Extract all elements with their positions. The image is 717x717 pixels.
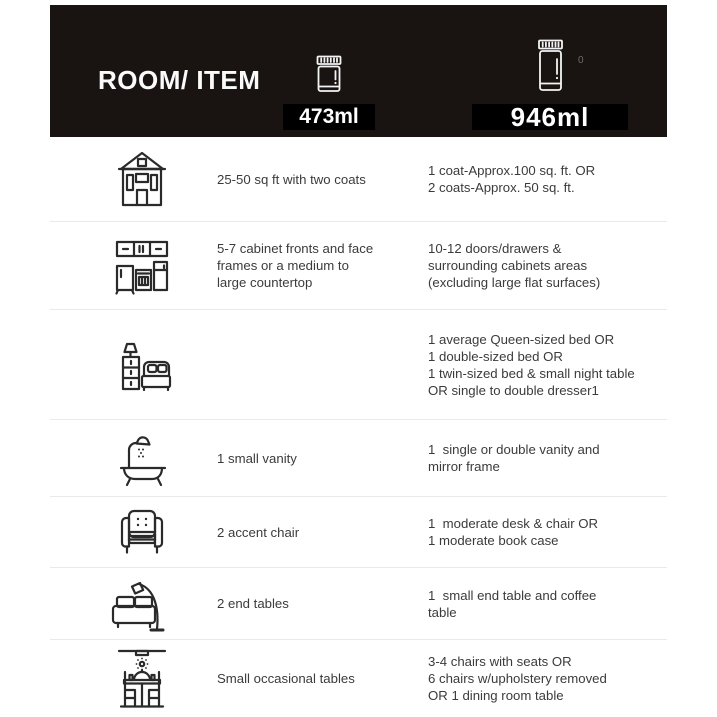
table-row-kitchen: 5-7 cabinet fronts and face frames or a … — [50, 222, 667, 310]
stray-mark: 0 — [578, 55, 584, 66]
usage-473ml: Small occasional tables — [215, 670, 428, 687]
usage-946ml: 3-4 chairs with seats OR 6 chairs w/upho… — [428, 653, 667, 704]
usage-946ml: 1 moderate desk & chair OR 1 moderate bo… — [428, 515, 667, 549]
small-paint-can-icon — [314, 55, 344, 93]
table-row-house: 25-50 sq ft with two coats 1 coat-Approx… — [50, 137, 667, 222]
usage-946ml: 1 average Queen-sized bed OR 1 double-si… — [428, 331, 667, 399]
usage-473ml: 2 accent chair — [215, 524, 428, 541]
usage-946ml: 1 coat-Approx.100 sq. ft. OR 2 coats-App… — [428, 162, 667, 196]
bathtub-icon — [50, 430, 215, 486]
room-item-title: ROOM/ ITEM — [98, 65, 260, 96]
column-946ml: 946ml — [472, 39, 628, 130]
table-header: ROOM/ ITEM 473ml 946ml 0 — [50, 5, 667, 137]
dining-table-icon — [50, 647, 215, 711]
sofa-floor-lamp-icon — [50, 573, 215, 635]
usage-946ml: 10-12 doors/drawers & surrounding cabine… — [428, 240, 667, 291]
column-label-473ml: 473ml — [283, 104, 375, 130]
usage-946ml: 1 small end table and coffee table — [428, 587, 667, 621]
table-row-bedroom: 1 average Queen-sized bed OR 1 double-si… — [50, 310, 667, 420]
usage-473ml: 5-7 cabinet fronts and face frames or a … — [215, 240, 428, 291]
table-row-end-tables: 2 end tables 1 small end table and coffe… — [50, 568, 667, 640]
kitchen-cabinets-icon — [50, 236, 215, 296]
usage-473ml: 2 end tables — [215, 595, 428, 612]
table-body: 25-50 sq ft with two coats 1 coat-Approx… — [50, 137, 667, 717]
usage-473ml: 25-50 sq ft with two coats — [215, 171, 428, 188]
usage-946ml: 1 single or double vanity and mirror fra… — [428, 441, 667, 475]
column-473ml: 473ml — [283, 55, 375, 130]
column-label-946ml: 946ml — [472, 104, 628, 130]
table-row-dining: Small occasional tables 3-4 chairs with … — [50, 640, 667, 717]
house-icon — [50, 149, 215, 209]
usage-473ml: 1 small vanity — [215, 450, 428, 467]
table-row-bathroom: 1 small vanity 1 single or double vanity… — [50, 420, 667, 497]
armchair-icon — [50, 506, 215, 558]
paint-coverage-infographic: ROOM/ ITEM 473ml 946ml 0 — [0, 0, 717, 717]
table-row-accent-chair: 2 accent chair 1 moderate desk & chair O… — [50, 497, 667, 568]
large-paint-can-icon — [535, 39, 566, 92]
bedroom-icon — [50, 336, 215, 394]
